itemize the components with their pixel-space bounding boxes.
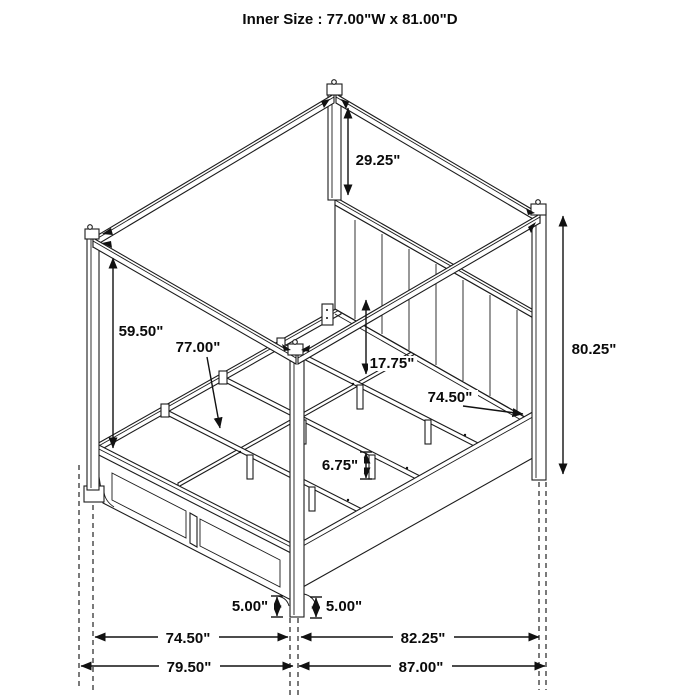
- footboard-panel-divider: [190, 513, 197, 547]
- dim-label-post-top-to-headboard: 29.25": [356, 152, 401, 169]
- slat-bracket: [161, 404, 169, 417]
- right-post: [532, 210, 546, 480]
- rear-leg-bracket: [322, 304, 333, 325]
- canopy-beam-left-rear: [93, 94, 334, 247]
- dim-label-slat-length: 77.00": [176, 339, 221, 356]
- near-side-rail: [294, 409, 538, 592]
- canopy-corner-cap: [85, 229, 99, 239]
- slat-leg: [357, 385, 363, 409]
- canopy-finial: [536, 200, 541, 205]
- diagram-title: Inner Size : 77.00"W x 81.00"D: [242, 11, 457, 28]
- canopy-finial: [88, 225, 93, 230]
- dim-label-footboard-inner-width: 74.50": [166, 630, 211, 647]
- diagram-canvas: Inner Size : 77.00"W x 81.00"D 29.25" 59…: [0, 0, 700, 700]
- slat-bracket: [219, 371, 227, 384]
- bracket-dot: [326, 309, 328, 311]
- front-leg-bracket-curve: [304, 594, 316, 605]
- dim-label-footboard-clearance: 5.00": [232, 598, 268, 615]
- fastener-dot: [347, 499, 349, 501]
- fastener-dot: [239, 451, 241, 453]
- canopy-finial: [332, 80, 337, 85]
- slat-leg: [309, 487, 315, 511]
- dim-label-overall-width: 79.50": [167, 659, 212, 676]
- dim-label-support-leg-height: 6.75": [322, 457, 358, 474]
- canopy-corner-cap: [327, 84, 342, 95]
- fastener-dot: [352, 383, 354, 385]
- canopy-finial: [293, 340, 298, 345]
- slat-leg: [247, 455, 253, 479]
- dim-label-headboard-inner-width: 74.50": [428, 389, 473, 406]
- slat-leg: [369, 455, 375, 479]
- bracket-dot: [326, 317, 328, 319]
- dim-label-floor-to-canopy: 59.50": [119, 323, 164, 340]
- canopy-beam-edge: [93, 97, 334, 241]
- bed-dimension-diagram: Inner Size : 77.00"W x 81.00"D 29.25" 59…: [0, 0, 700, 700]
- dim-label-overall-depth: 87.00": [399, 659, 444, 676]
- fastener-dot: [406, 467, 408, 469]
- dim-label-overall-height: 80.25": [572, 341, 617, 358]
- dim-label-rail-top-height: 17.75": [370, 355, 415, 372]
- fastener-dot: [464, 434, 466, 436]
- dim-label-siderail-clearance: 5.00": [326, 598, 362, 615]
- front-post: [290, 350, 304, 617]
- rear-post: [328, 90, 341, 200]
- leader-slat-length: [207, 357, 220, 428]
- dim-label-siderail-length: 82.25": [401, 630, 446, 647]
- slat-leg: [425, 420, 431, 444]
- left-post: [87, 234, 99, 490]
